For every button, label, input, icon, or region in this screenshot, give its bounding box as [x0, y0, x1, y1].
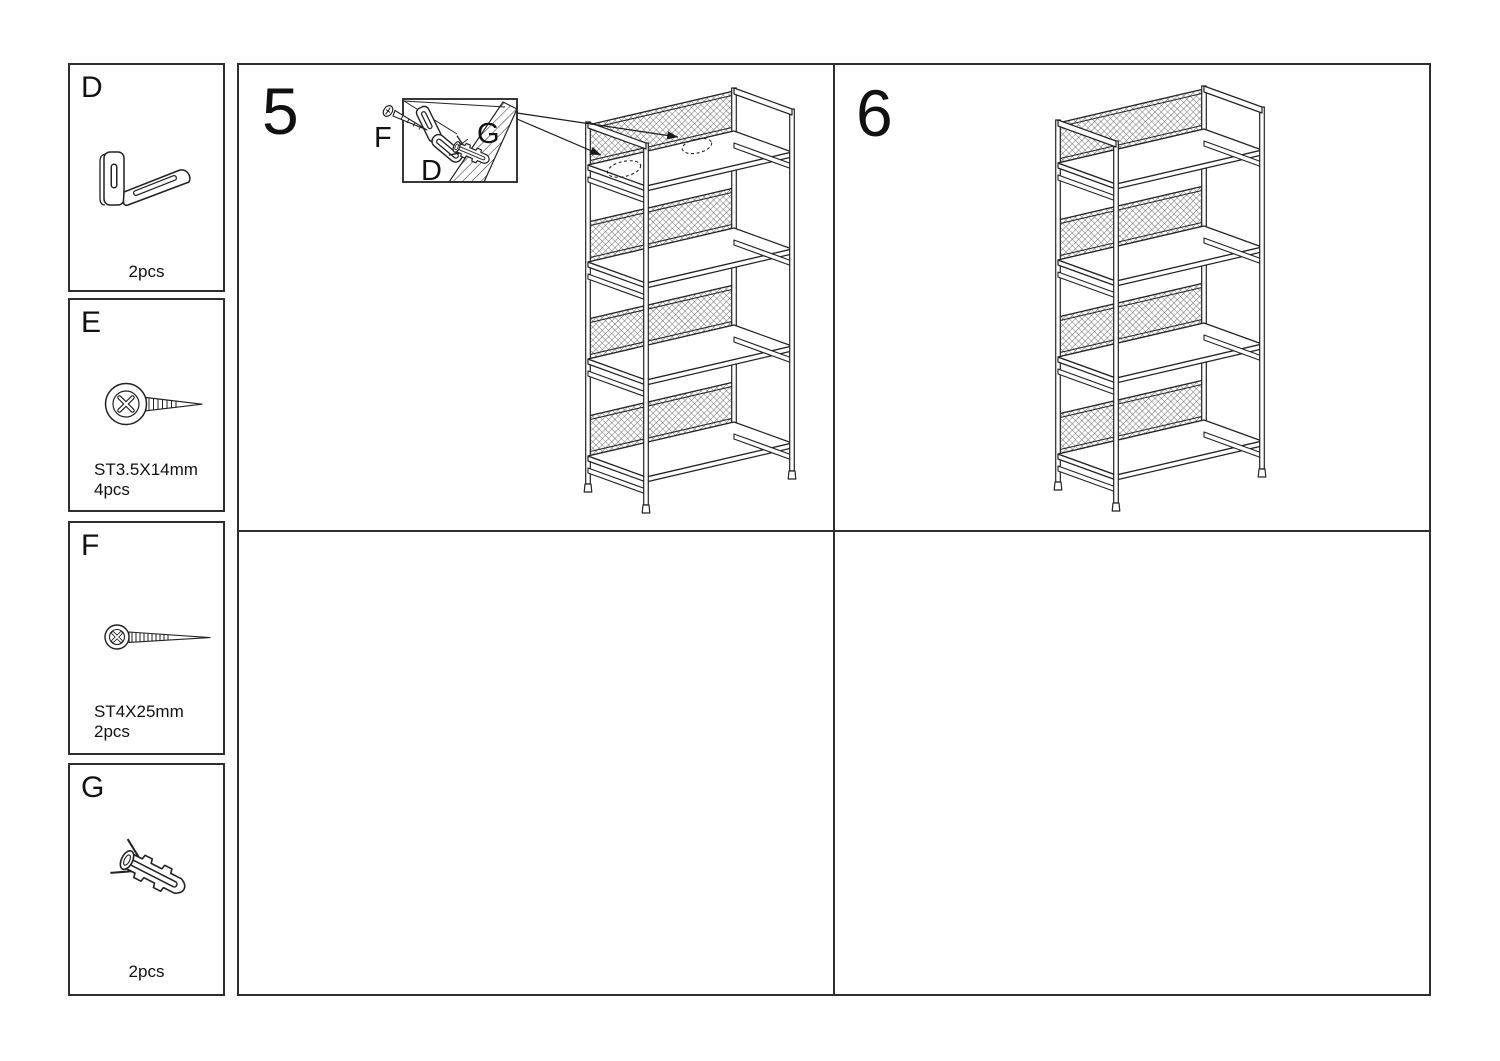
bookshelf-step5: [584, 88, 796, 513]
assembly-instruction-page: D 2pcs E ST3.5X14mm4pcs F: [0, 0, 1500, 1061]
bookshelf-step6: [1054, 86, 1266, 511]
illustrations-layer: F D G: [0, 0, 1500, 1061]
callout-label-anchor: G: [477, 118, 500, 150]
callout-label-screw: F: [374, 122, 392, 154]
callout-label-bracket: D: [421, 155, 442, 187]
